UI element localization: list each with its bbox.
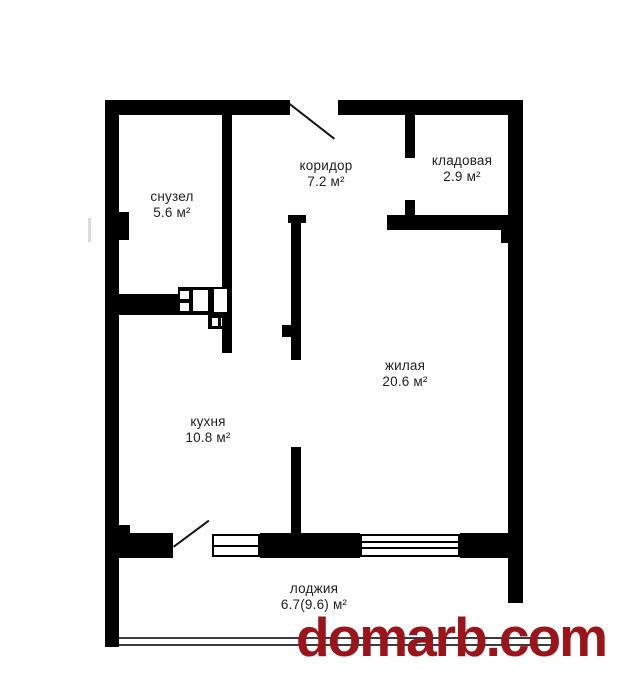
wall-below-shaft (222, 315, 232, 353)
loggia-door-swing (173, 520, 210, 548)
wall-bottom-middle (260, 533, 360, 558)
room-area: 10.8 м² (185, 430, 230, 445)
room-area: 5.6 м² (153, 205, 191, 220)
wall-divider-upper (291, 215, 301, 360)
room-label-corridor: коридор 7.2 м² (300, 158, 353, 190)
room-label-living: жилая 20.6 м² (382, 358, 427, 390)
wall-bottom-kitchen (105, 533, 173, 558)
wall-left-pilaster (119, 212, 129, 240)
watermark: domarb.com (296, 610, 606, 665)
wall-divider-lower (291, 447, 301, 533)
room-area: 20.6 м² (382, 374, 427, 389)
wall-right-outer (508, 100, 523, 603)
window-glazing-line (362, 547, 458, 549)
vent-shaft-opening (180, 303, 189, 311)
window-glazing-line (214, 545, 258, 547)
room-name: лоджия (290, 581, 338, 596)
room-label-storage: кладовая 2.9 м² (432, 153, 492, 185)
wall-bathroom-right (222, 115, 232, 287)
room-area: 7.2 м² (307, 174, 345, 189)
wall-storage-left-upper (405, 115, 415, 158)
room-name: кухня (190, 414, 225, 429)
wall-top-right-segment (338, 100, 523, 115)
wall-divider-bump (282, 325, 291, 337)
room-name: коридор (300, 158, 353, 173)
wall-bathroom-bottom (119, 294, 178, 315)
scan-artifact-mark (88, 218, 91, 242)
vent-shaft-opening (180, 291, 189, 299)
wall-bottom-right (460, 533, 508, 558)
wall-top-left-segment (105, 100, 290, 115)
window-glazing-line (362, 541, 458, 543)
room-area: 2.9 м² (443, 169, 481, 184)
vent-shaft-opening (212, 318, 218, 326)
wall-left-outer (105, 100, 119, 647)
room-name: жилая (385, 358, 425, 373)
vent-shaft-opening (193, 290, 208, 311)
entrance-door-swing (289, 103, 335, 140)
kitchen-window (212, 534, 260, 557)
wall-storage-left-stub (405, 200, 415, 215)
wall-storage-pilaster (501, 230, 508, 243)
floor-plan: снузел 5.6 м² коридор 7.2 м² кладовая 2.… (0, 0, 630, 685)
room-name: снузел (150, 189, 193, 204)
room-label-bathroom: снузел 5.6 м² (150, 189, 193, 221)
wall-bottom-kitchen-step (119, 525, 130, 533)
living-room-window (360, 534, 460, 557)
vent-shaft-opening (214, 289, 227, 312)
room-label-kitchen: кухня 10.8 м² (185, 414, 230, 446)
room-name: кладовая (432, 153, 492, 168)
wall-storage-bottom (387, 215, 508, 230)
